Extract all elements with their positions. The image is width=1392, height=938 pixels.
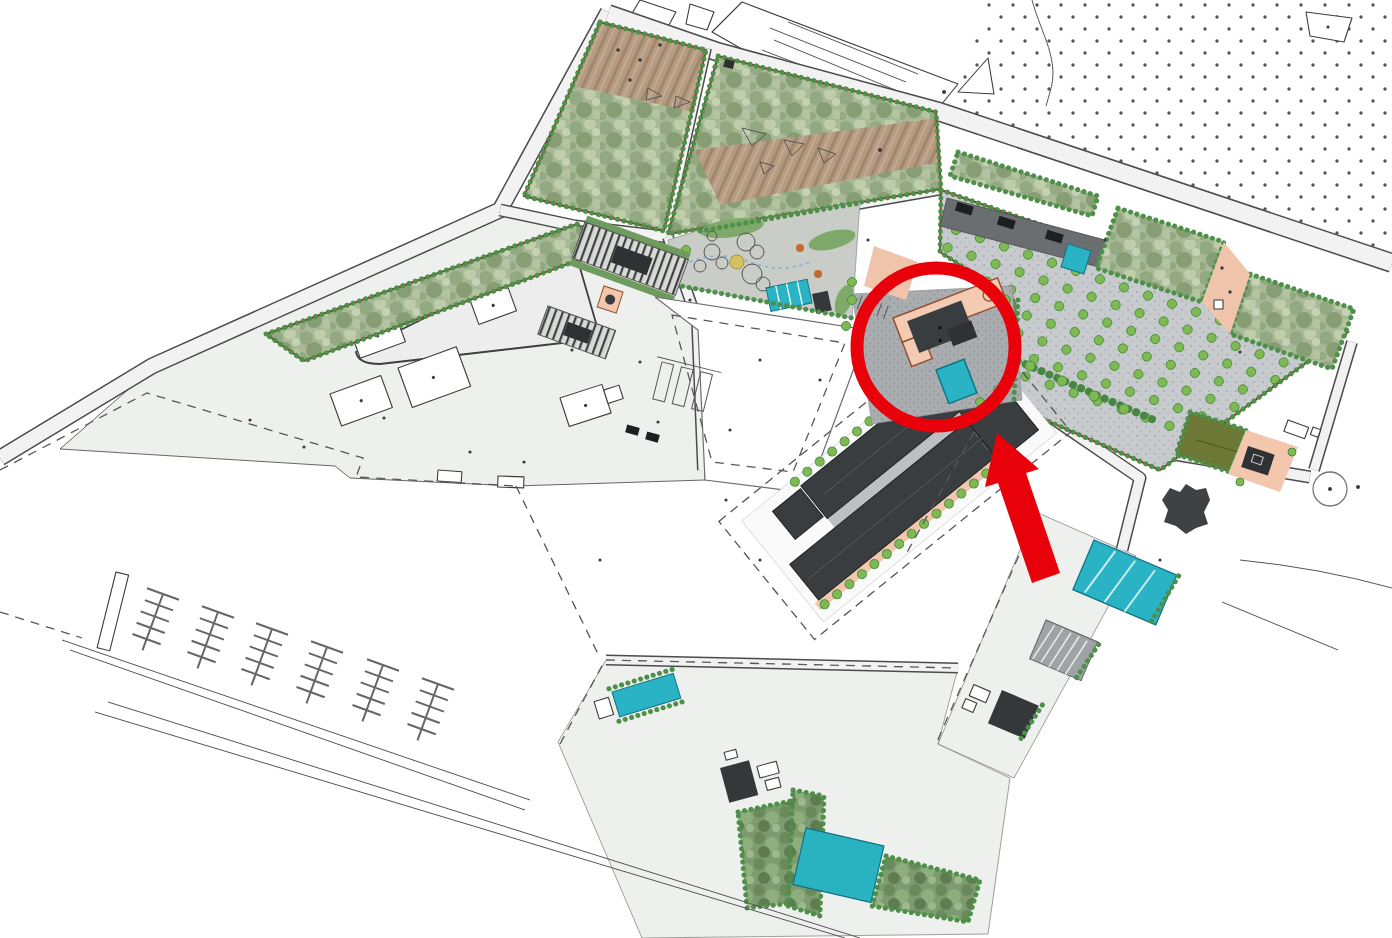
pavement-dot bbox=[570, 348, 573, 351]
orchard-tree bbox=[1165, 421, 1174, 430]
orchard-tree bbox=[1015, 268, 1024, 277]
orchard-tree bbox=[1023, 250, 1032, 259]
orchard-tree bbox=[1151, 334, 1160, 343]
orchard-tree bbox=[1087, 292, 1096, 301]
orchard-tree bbox=[1206, 394, 1215, 403]
orchard-tree bbox=[991, 259, 1000, 268]
orchard-tree bbox=[1159, 317, 1168, 326]
orchard-tree bbox=[1095, 275, 1104, 284]
orchard-tree bbox=[1103, 318, 1112, 327]
orchard-tree bbox=[1119, 283, 1128, 292]
orchard-tree bbox=[1183, 325, 1192, 334]
pavement-dot bbox=[724, 498, 727, 501]
pavement-dot bbox=[866, 238, 869, 241]
orchard-tree bbox=[1031, 293, 1040, 302]
site-plan-page bbox=[0, 0, 1392, 938]
orchard-tree bbox=[1142, 352, 1151, 361]
orchard-tree bbox=[1135, 309, 1144, 318]
orchard-tree bbox=[1118, 344, 1127, 353]
pavement-dot bbox=[522, 460, 525, 463]
orchard-tree bbox=[1191, 307, 1200, 316]
orchard-tree bbox=[1238, 385, 1247, 394]
orchard-tree bbox=[1111, 300, 1120, 309]
orchard-tree bbox=[1070, 327, 1079, 336]
orchard-tree bbox=[1127, 326, 1136, 335]
orchard-tree bbox=[1143, 291, 1152, 300]
pavement-dot bbox=[382, 416, 385, 419]
orchard-tree bbox=[1182, 386, 1191, 395]
orchard-tree bbox=[1063, 284, 1072, 293]
orchard-tree bbox=[1101, 379, 1110, 388]
pavement-dot bbox=[302, 445, 305, 448]
pavement-dot bbox=[468, 450, 471, 453]
orchard-tree bbox=[1038, 337, 1047, 346]
orchard-tree bbox=[1134, 370, 1143, 379]
pavement-dot bbox=[758, 558, 761, 561]
orchard-tree bbox=[1039, 276, 1048, 285]
orchard-tree bbox=[1094, 336, 1103, 345]
orchard-tree bbox=[1199, 351, 1208, 360]
orchard-tree bbox=[1045, 380, 1054, 389]
pavement-dot bbox=[656, 420, 659, 423]
orchard-tree bbox=[1173, 404, 1182, 413]
orchard-tree bbox=[1022, 311, 1031, 320]
orchard-tree bbox=[1214, 377, 1223, 386]
orchard-tree bbox=[1190, 368, 1199, 377]
orchard-tree bbox=[1223, 359, 1232, 368]
orchard-tree bbox=[1158, 378, 1167, 387]
pavement-dot bbox=[598, 558, 601, 561]
orchard-tree bbox=[1079, 310, 1088, 319]
orchard-tree bbox=[967, 251, 976, 260]
orchard-tree bbox=[1069, 388, 1078, 397]
sand-circle bbox=[730, 255, 744, 269]
orchard-tree bbox=[1167, 299, 1176, 308]
orchard-tree bbox=[1110, 361, 1119, 370]
pavement-dot bbox=[1238, 350, 1241, 353]
pavement-dot bbox=[928, 476, 931, 479]
orchard-tree bbox=[1062, 345, 1071, 354]
orchard-tree bbox=[1046, 319, 1055, 328]
orchard-tree bbox=[1279, 358, 1288, 367]
orchard-tree bbox=[1207, 333, 1216, 342]
orchard-tree bbox=[1230, 402, 1239, 411]
pavement-dot bbox=[838, 560, 841, 563]
orchard-tree bbox=[1231, 341, 1240, 350]
orchard-tree bbox=[1055, 302, 1064, 311]
site-plan-map bbox=[0, 0, 1392, 938]
pavement-dot bbox=[638, 360, 641, 363]
orchard-tree bbox=[1247, 367, 1256, 376]
orchard-tree bbox=[1125, 387, 1134, 396]
orchard-tree bbox=[1086, 353, 1095, 362]
orchard-tree bbox=[1166, 360, 1175, 369]
orchard-tree bbox=[1149, 395, 1158, 404]
orchard-tree bbox=[1255, 350, 1264, 359]
pavement-dot bbox=[248, 418, 251, 421]
pavement-dot bbox=[1158, 558, 1161, 561]
orchard-tree bbox=[1053, 363, 1062, 372]
orchard-tree bbox=[943, 243, 952, 252]
orchard-tree bbox=[1175, 343, 1184, 352]
pavement-dot bbox=[1103, 238, 1106, 241]
orchard-tree bbox=[1077, 371, 1086, 380]
orchard-tree bbox=[1047, 258, 1056, 267]
pavement-dot bbox=[688, 298, 691, 301]
